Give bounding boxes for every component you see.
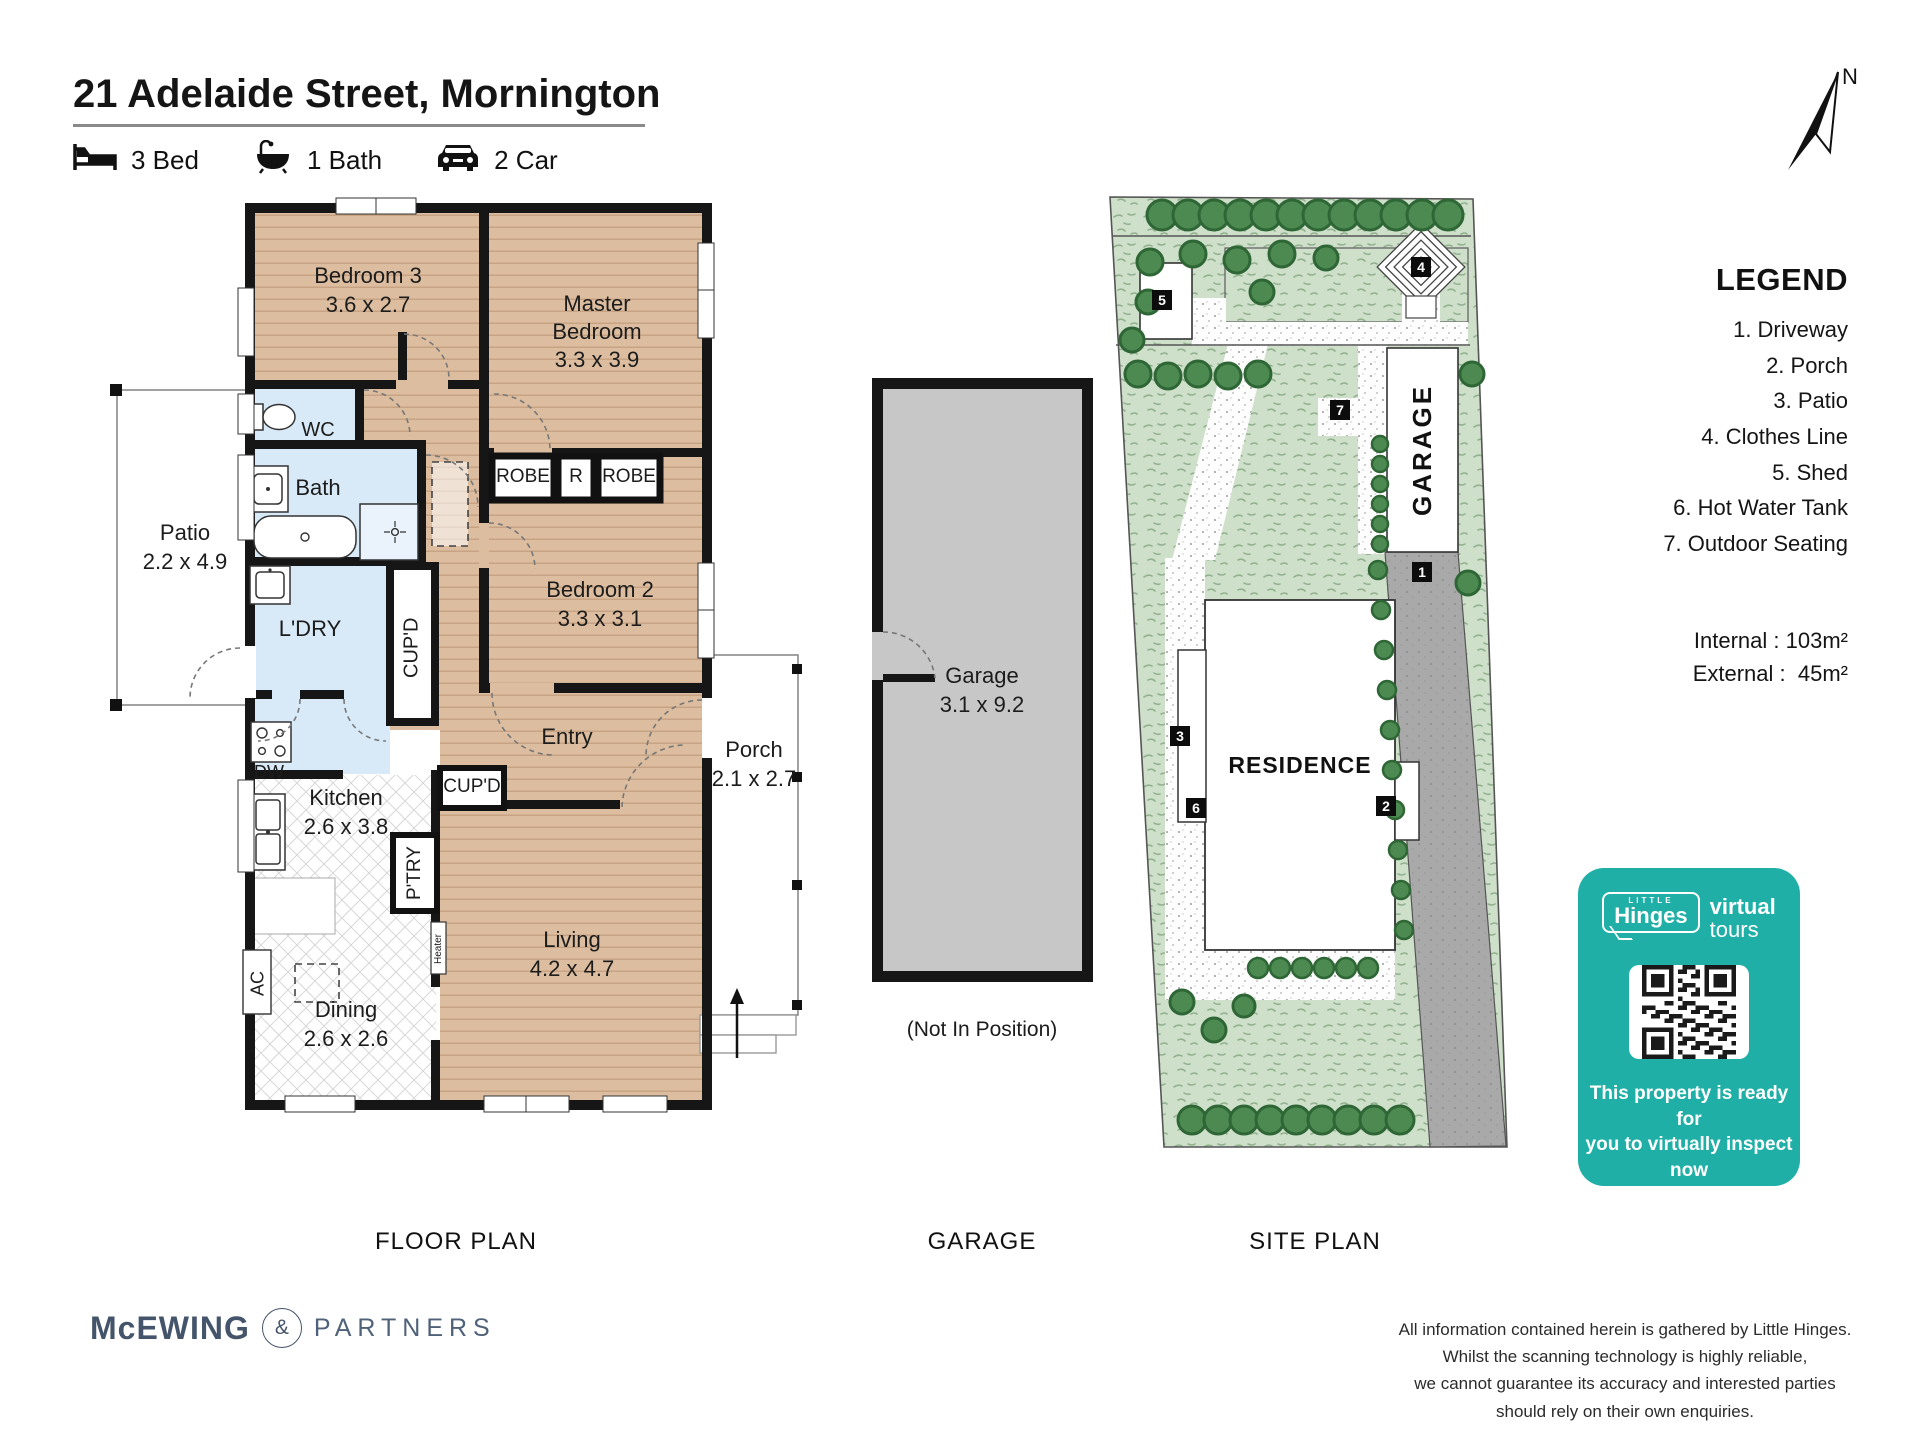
- garage-note: (Not In Position): [862, 1018, 1102, 1042]
- room-bath: Bath: [268, 475, 368, 501]
- external-area-value: 45m²: [1798, 661, 1848, 686]
- room-master: Master Bedroom3.3 x 3.9: [538, 290, 656, 374]
- site-plan-drawing: [1110, 197, 1507, 1147]
- caption-garage: GARAGE: [862, 1228, 1102, 1256]
- site-marker-hot-water: 6: [1186, 798, 1206, 818]
- legend-item-patio: 3. Patio: [1568, 383, 1848, 419]
- site-residence-label: RESIDENCE: [1205, 752, 1395, 779]
- virtual-tour-card: LITTLE Hinges virtual tours This propert…: [1578, 868, 1800, 1186]
- bath-icon: [253, 140, 293, 181]
- disclaimer: All information contained herein is gath…: [1395, 1316, 1855, 1425]
- robe-left-label: ROBE: [492, 466, 554, 488]
- disclaimer-line: All information contained herein is gath…: [1395, 1316, 1855, 1343]
- dishwasher-label: DW: [249, 762, 289, 783]
- site-marker-patio: 3: [1170, 726, 1190, 746]
- floor-plan-drawing: [110, 198, 802, 1112]
- legend: LEGEND 1. Driveway 2. Porch 3. Patio 4. …: [1568, 262, 1848, 561]
- room-wc: WC: [290, 419, 346, 442]
- internal-area-label: Internal :: [1694, 628, 1780, 653]
- legend-item-clothes-line: 4. Clothes Line: [1568, 419, 1848, 455]
- little-hinges-logo: LITTLE Hinges virtual tours: [1602, 892, 1775, 941]
- room-laundry: L'DRY: [258, 616, 362, 642]
- room-dining: Dining2.6 x 2.6: [276, 996, 416, 1052]
- site-marker-shed: 5: [1152, 290, 1172, 310]
- legend-item-porch: 2. Porch: [1568, 348, 1848, 384]
- heater-label: Heater: [430, 924, 447, 974]
- beds-label: 3 Bed: [131, 145, 199, 176]
- caption-site-plan: SITE PLAN: [1195, 1228, 1435, 1256]
- room-kitchen: Kitchen2.6 x 3.8: [276, 784, 416, 840]
- plan-graphics: .wall{fill:#161616;} .fix{fill:#fff;stro…: [0, 0, 1920, 1440]
- north-arrow-icon: [1788, 72, 1838, 170]
- legend-item-driveway: 1. Driveway: [1568, 312, 1848, 348]
- agency-logo: McEWING & PARTNERS: [90, 1308, 496, 1348]
- legend-item-shed: 5. Shed: [1568, 455, 1848, 491]
- floorplan-page: .wall{fill:#161616;} .fix{fill:#fff;stro…: [0, 0, 1920, 1440]
- site-marker-porch: 2: [1376, 796, 1396, 816]
- room-garage: Garage3.1 x 9.2: [912, 662, 1052, 718]
- logo-virtual-text: virtual: [1710, 895, 1776, 918]
- caption-floor-plan: FLOOR PLAN: [336, 1228, 576, 1256]
- promo-url: littlehinges.com.au: [1610, 1200, 1767, 1222]
- room-living: Living4.2 x 4.7: [502, 926, 642, 982]
- robe-right-label: ROBE: [598, 466, 660, 488]
- disclaimer-line: Whilst the scanning technology is highly…: [1395, 1343, 1855, 1370]
- cupboard-hall-label: CUP'D: [392, 588, 432, 708]
- cupboard-entry-label: CUP'D: [438, 776, 506, 798]
- site-garage-label: GARAGE: [1387, 348, 1458, 552]
- room-patio: Patio2.2 x 4.9: [115, 519, 255, 575]
- bed-icon: [73, 142, 117, 179]
- disclaimer-line: should rely on their own enquiries.: [1395, 1398, 1855, 1425]
- external-area-label: External :: [1693, 661, 1786, 686]
- site-marker-driveway: 1: [1412, 562, 1432, 582]
- site-marker-clothesline: 4: [1411, 257, 1431, 277]
- car-icon: [436, 141, 480, 180]
- room-porch: Porch2.1 x 2.7: [684, 736, 824, 792]
- robe-small-label: R: [558, 466, 594, 488]
- cars-label: 2 Car: [494, 145, 558, 176]
- property-features: 3 Bed 1 Bath 2 Car: [73, 140, 558, 181]
- legend-title: LEGEND: [1568, 262, 1848, 298]
- agency-ampersand: &: [262, 1308, 302, 1348]
- logo-tours-text: tours: [1710, 918, 1776, 941]
- baths-label: 1 Bath: [307, 145, 382, 176]
- page-title: 21 Adelaide Street, Mornington: [73, 72, 660, 117]
- agency-partners: PARTNERS: [314, 1314, 496, 1343]
- qr-code: [1629, 965, 1749, 1059]
- site-marker-seating: 7: [1330, 400, 1350, 420]
- legend-item-hot-water-tank: 6. Hot Water Tank: [1568, 490, 1848, 526]
- area-summary: Internal : 103m² External : 45m²: [1568, 624, 1848, 690]
- legend-item-outdoor-seating: 7. Outdoor Seating: [1568, 526, 1848, 562]
- room-bedroom2: Bedroom 23.3 x 3.1: [530, 576, 670, 632]
- disclaimer-line: we cannot guarantee its accuracy and int…: [1395, 1370, 1855, 1397]
- logo-hinges-text: Hinges: [1614, 905, 1687, 927]
- pantry-label: P'TRY: [398, 840, 432, 906]
- room-entry: Entry: [517, 724, 617, 750]
- promo-line-1: This property is ready for: [1578, 1081, 1800, 1132]
- north-label: N: [1842, 64, 1858, 90]
- promo-line-2: you to virtually inspect now: [1578, 1132, 1800, 1183]
- title-divider: [73, 124, 645, 127]
- agency-name: McEWING: [90, 1310, 250, 1347]
- room-bedroom3: Bedroom 33.6 x 2.7: [298, 262, 438, 318]
- internal-area-value: 103m²: [1786, 628, 1848, 653]
- ac-label: AC: [244, 954, 272, 1012]
